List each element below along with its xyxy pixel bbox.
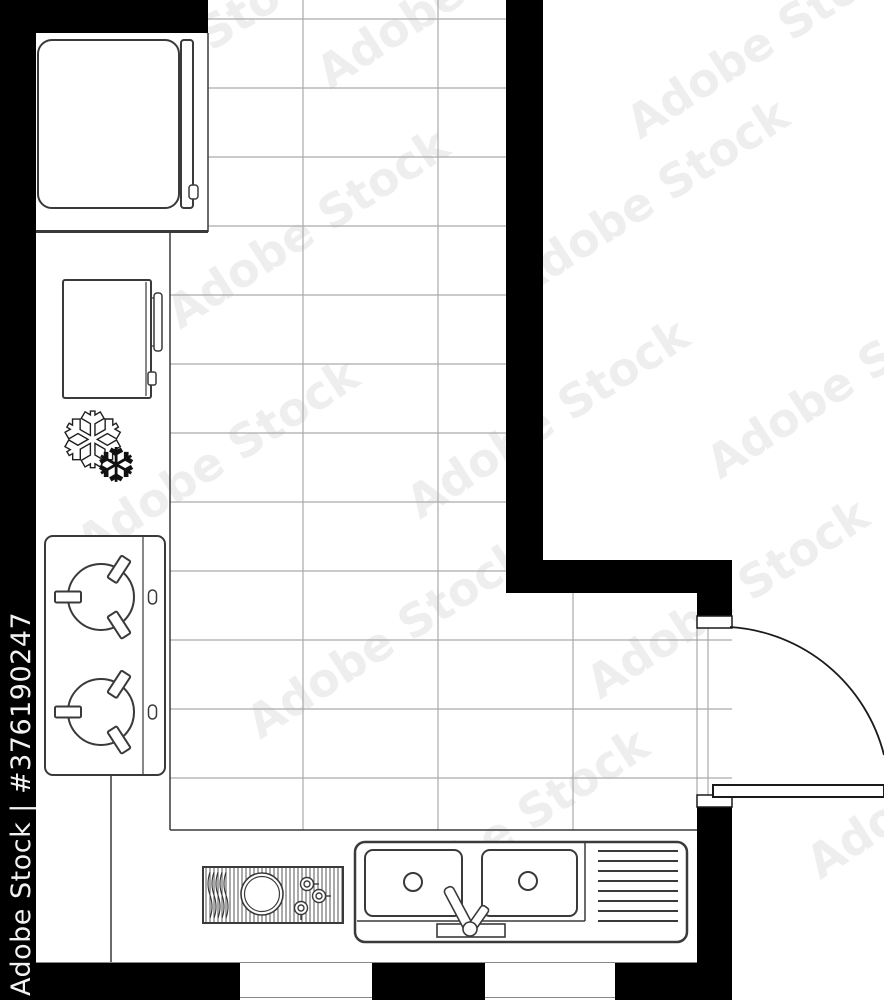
- diagonal-watermark-text: Adobe Stock: [397, 306, 700, 529]
- floor-plan-canvas: Adobe Stock Adobe Stock Adobe Stock Adob…: [0, 0, 884, 1000]
- burner-grate: [55, 707, 81, 718]
- diagonal-watermark-text: Adobe Stock: [797, 666, 884, 889]
- sink-basin-left: [365, 850, 462, 916]
- bottom-wall-left-segment: [36, 963, 240, 1000]
- oven-hinge-nub: [148, 372, 156, 385]
- diagonal-watermark-text: Adobe Stock: [307, 0, 610, 99]
- diagonal-watermark-text: Adobe Stock: [237, 526, 540, 749]
- diagonal-watermark-text: Adobe Stock: [697, 266, 884, 489]
- grill-burner-outer: [241, 873, 283, 915]
- sink-unit: [355, 842, 687, 942]
- refrigerator-door: [181, 40, 193, 208]
- watermark-id-text: Adobe Stock | #376190247: [6, 612, 37, 996]
- door-leaf: [713, 785, 884, 797]
- bottom-wall-middle-segment: [372, 963, 485, 1000]
- potted-plant: ❆ ❆: [60, 397, 136, 494]
- right-upper-wall: [506, 0, 543, 593]
- refrigerator-body: [38, 40, 179, 208]
- sink-basin-right: [482, 850, 577, 916]
- oven-body: [63, 280, 151, 398]
- refrigerator-handle: [189, 185, 198, 199]
- door-top-wall-stub: [697, 593, 732, 617]
- bottom-wall-right-segment: [615, 963, 732, 1000]
- oven-handle: [154, 293, 162, 351]
- grill-module: [203, 867, 343, 923]
- door-swing-arc: [730, 627, 884, 755]
- door-jamb-top: [697, 616, 732, 628]
- burner-grate: [55, 592, 81, 603]
- mid-horizontal-wall: [543, 560, 732, 593]
- cooktop-knob: [149, 705, 157, 719]
- cooktop: [45, 536, 165, 775]
- floor-plan-image: Adobe Stock Adobe Stock Adobe Stock Adob…: [0, 0, 884, 1000]
- plant-small-leaves: ❆: [96, 438, 136, 494]
- diagonal-watermark-text: Adobe Stock: [157, 116, 460, 339]
- refrigerator: [38, 40, 198, 208]
- cooktop-knob: [149, 590, 157, 604]
- top-wall: [0, 0, 208, 33]
- oven: [63, 280, 162, 398]
- faucet-pivot: [463, 922, 477, 936]
